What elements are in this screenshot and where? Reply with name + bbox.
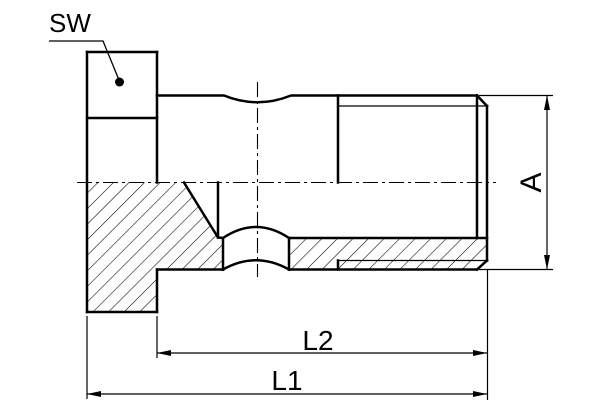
drawing-sheet: A L2 L1 SW [0,0,600,400]
cross-hole-bore-intersection-arc [223,227,289,238]
arrowhead-l2-right [473,350,487,356]
dim-label-a: A [515,172,548,192]
arrowhead-l1-left [87,391,101,397]
body-top-edge [157,96,477,103]
dimension-a: A [479,96,553,270]
leader-dot-sw [115,78,124,87]
dimension-l2: L2 [157,316,487,358]
leader-line-sw [49,41,119,80]
section-hatching [87,183,487,313]
arrowhead-a-up [544,96,550,111]
dim-label-l2: L2 [302,325,333,356]
dim-label-l1: L1 [271,365,302,396]
arrowhead-l1-right [473,391,487,397]
cross-hole-outer-intersection-arc [223,260,289,269]
arrowhead-a-down [544,255,550,270]
hatch-thread-wall-region [289,238,487,270]
hatch-head-region [87,183,223,313]
chamfer-top [477,96,487,107]
dim-label-sw: SW [49,8,91,38]
arrowhead-l2-left [157,350,171,356]
technical-drawing: A L2 L1 SW [0,0,600,400]
